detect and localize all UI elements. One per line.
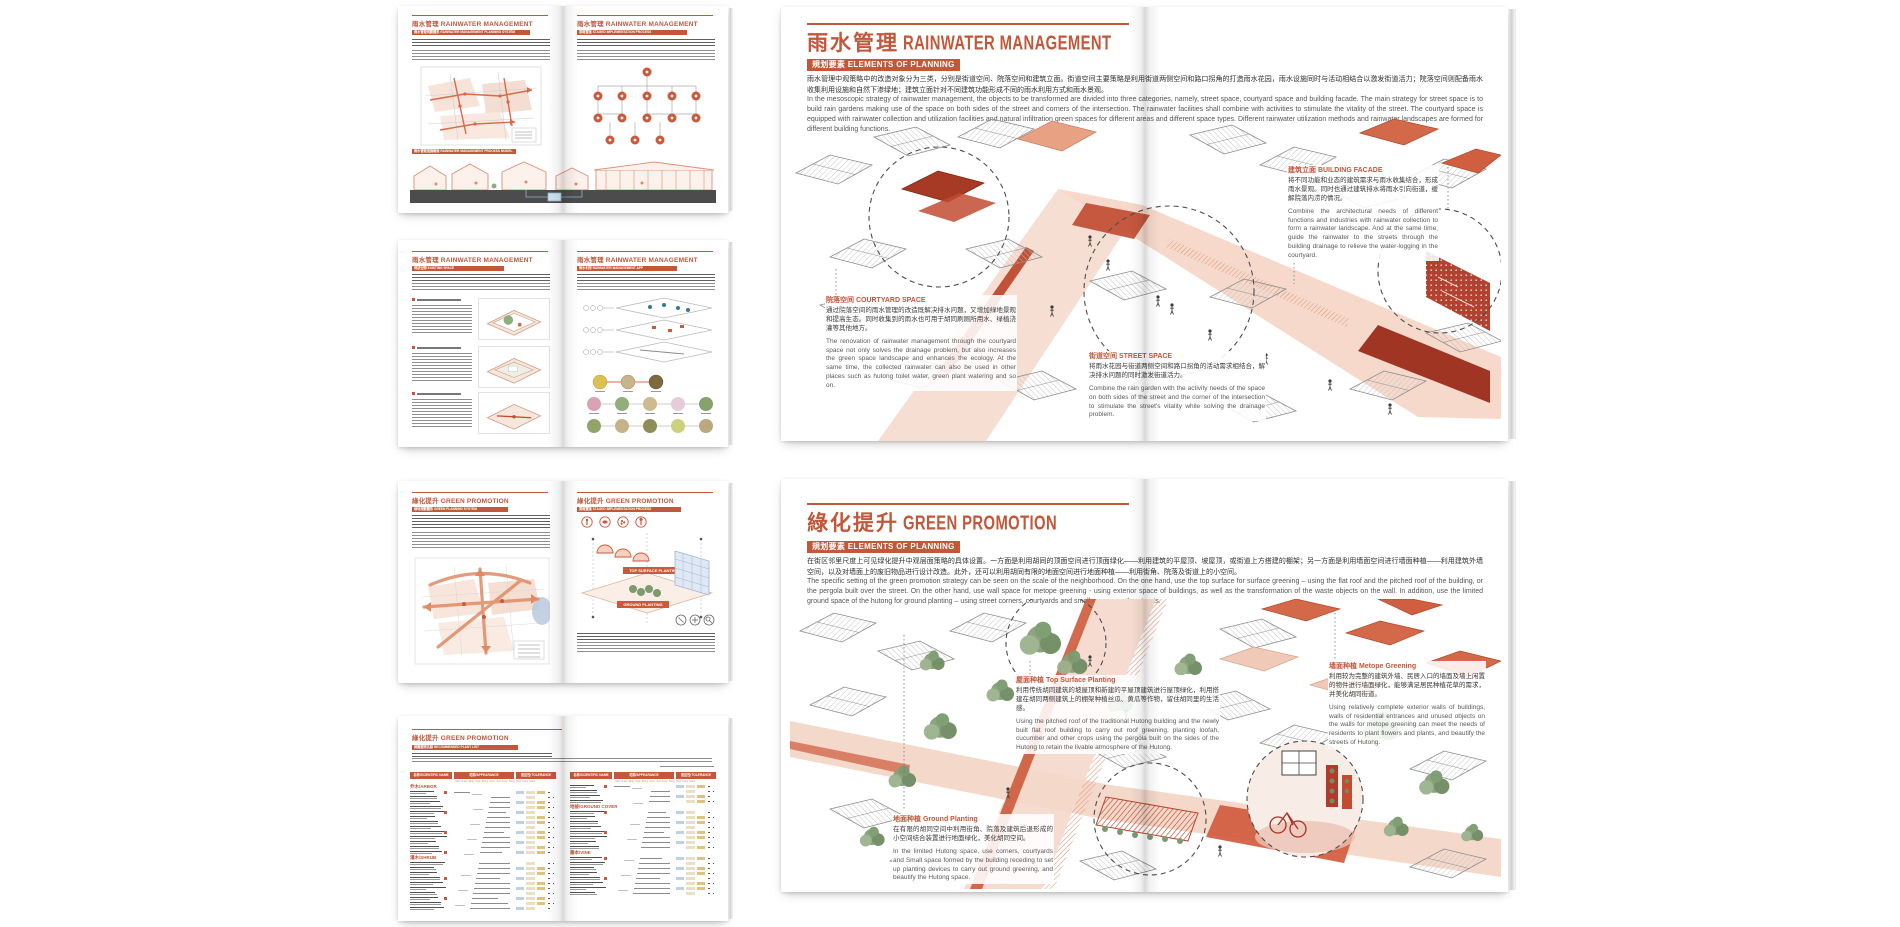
portfolio-board: 雨水管理 RAINWATER MANAGEMENT 雨水管理規劃體系 RAINW… [0,0,1900,927]
model-text-2 [412,353,472,381]
table-row [410,906,556,911]
section-tag: 策略實施 STAGED IMPLEMENTATION PROCESS [577,507,681,512]
annotation-en: Using relatively complete exterior walls… [1329,704,1485,748]
page-title-en: RAINWATER MANAGEMENT [903,32,1111,56]
courtyard-section-drawing [406,156,720,208]
page-title: 綠化提升 GREEN PROMOTION [807,507,1101,537]
annotation-heading: 地面种植 Ground Planting [893,815,1053,824]
intro-zh: 在街区邻里尺度上可见绿化提升中观层面策略的具体设置。一方面是利用胡同的顶面空间进… [807,557,1483,579]
divider [577,15,713,16]
exploded-plan-layers [580,296,716,368]
model-heading-2 [412,346,461,349]
divider [577,492,713,493]
page-title-zh: 雨水管理 [807,30,899,55]
annotation-heading: 建筑立面 BUILDING FACADE [1288,166,1438,175]
paragraph-en [412,532,550,550]
thumbnail-spread-green-1: 綠化提升 GREEN PROMOTION 綠地規劃體系 GREEN PLANNI… [398,481,728,683]
table-row [570,891,716,896]
page-fold [548,481,578,683]
section-tag: 規划要素 ELEMENTS OF PLANNING [807,59,960,71]
label-ground-planting: GROUND PLANTING [623,602,662,607]
annotation-ground-planting: 地面种植 Ground Planting 在有限的胡同空间中利用街角、院落及建筑… [892,814,1054,884]
page-title: 雨水管理 RAINWATER MANAGEMENT [412,254,533,264]
table-header: 花期/APPEARANCE [454,772,514,779]
page-title: 綠化提升 GREEN PROMOTION [577,495,674,505]
page-stack-edge [729,718,733,919]
table-row [410,850,556,855]
section-tag: 雨水利用 RAINWATER MANAGEMENT APP [577,266,677,271]
annotation-en: Using the pitched roof of the traditiona… [1016,718,1219,753]
annotation-top-surface-planting: 屋面种植 Top Surface Planting 利用传统胡同建筑的坡屋顶和新… [1015,675,1220,754]
paragraph-zh [412,274,550,281]
table-row [570,799,716,804]
annotation-zh: 将雨水花园与街道两侧空间和路口拐角的活动需求相结合，解决排水问题的同时激发街道活… [1089,363,1265,381]
annotation-zh: 在有限的胡同空间中利用街角、院落及建筑后退形成的小空间结合装置进行地面绿化，美化… [893,826,1053,844]
strategy-icons-row [579,515,649,529]
divider [412,729,562,730]
divider [577,251,713,252]
plant-table-right: 名称/SCIENTIFIC NAME花期/APPEARANCE适应性/TOLER… [570,772,716,896]
section-tag: 雨水管理規劃體系 RAINWATER MANAGEMENT PLANNING S… [412,30,530,35]
section-tag: 現狀空間 EXISTING SPACE [412,266,504,271]
intro-zh: 雨水管理中观策略中的改造对象分为三类，分别是街道空间、院落空间和建筑立面。街道空… [807,75,1483,97]
section-tag: 推薦植物名錄 RECOMMENDED PLANT LIST [412,745,518,750]
label-top-surface-planting: TOP SURFACE PLANTING [629,568,679,573]
annotation-zh: 利用传统胡同建筑的坡屋顶和新建的平屋顶建筑进行屋顶绿化，利用搭建在胡同两侧建筑上… [1016,687,1219,713]
model-heading-1 [412,298,461,301]
table-row [570,845,716,850]
model-text-3 [412,399,472,427]
paragraph-en [577,50,715,60]
plant-table-left: 名称/SCIENTIFIC NAME花期/APPEARANCE适应性/TOLER… [410,772,556,911]
section-tag-bottom: 雨水管理措施斷面 RAINWATER MANAGEMENT PROCESS MO… [412,149,516,154]
annotation-heading: 墙面种植 Metope Greening [1329,662,1485,671]
annotation-courtyard-space: 院落空间 COURTYARD SPACE 通过院落空间的雨水管理的改造既解决排水… [825,295,1017,391]
paragraph-zh [577,39,715,47]
title-rule [807,23,1129,25]
page-stack-edge [729,8,733,211]
page-stack-edge [729,242,733,445]
courtyard-model-1 [478,298,550,340]
annotation-street-space: 街道空间 STREET SPACE 将雨水花园与街道两侧空间和路口拐角的活动需求… [1088,351,1266,421]
exploded-green-axon: TOP SURFACE PLANTING GROUND PLANTING [577,531,717,629]
paragraph-zh [412,515,550,529]
title-rule [807,503,1129,505]
table-header: 花期/APPEARANCE [614,772,674,779]
annotation-building-facade: 建筑立面 BUILDING FACADE 将不同功能和业态的建筑需求与雨水收集结… [1287,165,1439,261]
paragraph-en [412,50,550,62]
divider [412,15,548,16]
strategy-flow-diagram [580,64,714,148]
thumbnail-spread-rainwater-1: 雨水管理 RAINWATER MANAGEMENT 雨水管理規劃體系 RAINW… [398,6,728,213]
annotation-en: In the limited Hutong space, use corners… [893,848,1053,883]
page-title: 綠化提升 GREEN PROMOTION [412,495,509,505]
intro-zh [412,753,552,757]
courtyard-model-2 [478,346,550,388]
annotation-heading: 街道空间 STREET SPACE [1089,352,1265,361]
page-title: 雨水管理 RAINWATER MANAGEMENT [577,18,698,28]
divider [412,251,548,252]
page-stack-edge [1509,9,1516,439]
page-title: 綠化提升 GREEN PROMOTION [412,732,509,742]
annotation-en: Combine the architectural needs of diffe… [1288,208,1438,261]
section-tag: 策略實施 STAGED IMPLEMENTATION PROCESS [577,30,687,35]
page-title: 雨水管理 RAINWATER MANAGEMENT [807,27,1171,57]
annotation-heading: 屋面种植 Top Surface Planting [1016,676,1219,685]
page-title-en: GREEN PROMOTION [903,512,1057,536]
page-title-zh: 綠化提升 [807,510,899,535]
rainwater-plan-map [420,66,542,146]
paragraph-zh [412,39,550,47]
thumbnail-spread-green-2: 綠化提升 GREEN PROMOTION 推薦植物名錄 RECOMMENDED … [398,716,728,921]
annotation-en: The renovation of rainwater management t… [826,338,1016,391]
courtyard-model-3 [478,392,550,434]
annotation-heading: 院落空间 COURTYARD SPACE [826,296,1016,305]
caption-en [577,642,715,654]
plant-palette-swatches [580,372,716,436]
divider [412,492,548,493]
section-tag: 綠地規劃體系 GREEN PLANNING SYSTEM [412,507,508,512]
paragraph-zh [577,274,715,281]
annotation-zh: 将不同功能和业态的建筑需求与雨水收集结合，形成雨水景观。同时也通过建筑排水将雨水… [1288,177,1438,203]
annotation-metope-greening: 墙面种植 Metope Greening 利用较为完整的建筑外墙、民居入口的墙面… [1328,661,1486,749]
page-stack-edge [1509,481,1516,890]
spread-rainwater-management: 雨水管理 RAINWATER MANAGEMENT 規划要素 ELEMENTS … [781,7,1508,441]
annotation-zh: 通过院落空间的雨水管理的改造既解决排水问题，又增加绿地景观和提高生态。同时收集到… [826,307,1016,333]
page-title: 雨水管理 RAINWATER MANAGEMENT [577,254,698,264]
table-header: 名称/SCIENTIFIC NAME [570,772,612,779]
table-header: 适应性/TOLERANCE [516,772,556,779]
spread-green-promotion: 綠化提升 GREEN PROMOTION 規划要素 ELEMENTS OF PL… [781,479,1508,892]
table-header: 适应性/TOLERANCE [676,772,716,779]
page-fold [548,240,578,447]
table-header: 名称/SCIENTIFIC NAME [410,772,452,779]
thumbnail-spread-rainwater-2: 雨水管理 RAINWATER MANAGEMENT 現狀空間 EXISTING … [398,240,728,447]
model-text-1 [412,305,472,335]
section-tag: 規划要素 ELEMENTS OF PLANNING [807,541,960,553]
page-stack-edge [729,483,733,681]
annotation-en: Combine the rain garden with the activit… [1089,385,1265,420]
model-heading-3 [412,392,461,395]
paragraph-en [577,283,715,292]
annotation-zh: 利用较为完整的建筑外墙、民居入口的墙面及墙上闲置的物件进行墙面绿化，能够满足居民… [1329,673,1485,699]
page-title: 雨水管理 RAINWATER MANAGEMENT [412,18,533,28]
table-legend [660,766,714,769]
intro-en [412,758,712,762]
paragraph-en [412,283,550,292]
green-network-map [414,557,550,665]
caption-zh [577,633,715,640]
